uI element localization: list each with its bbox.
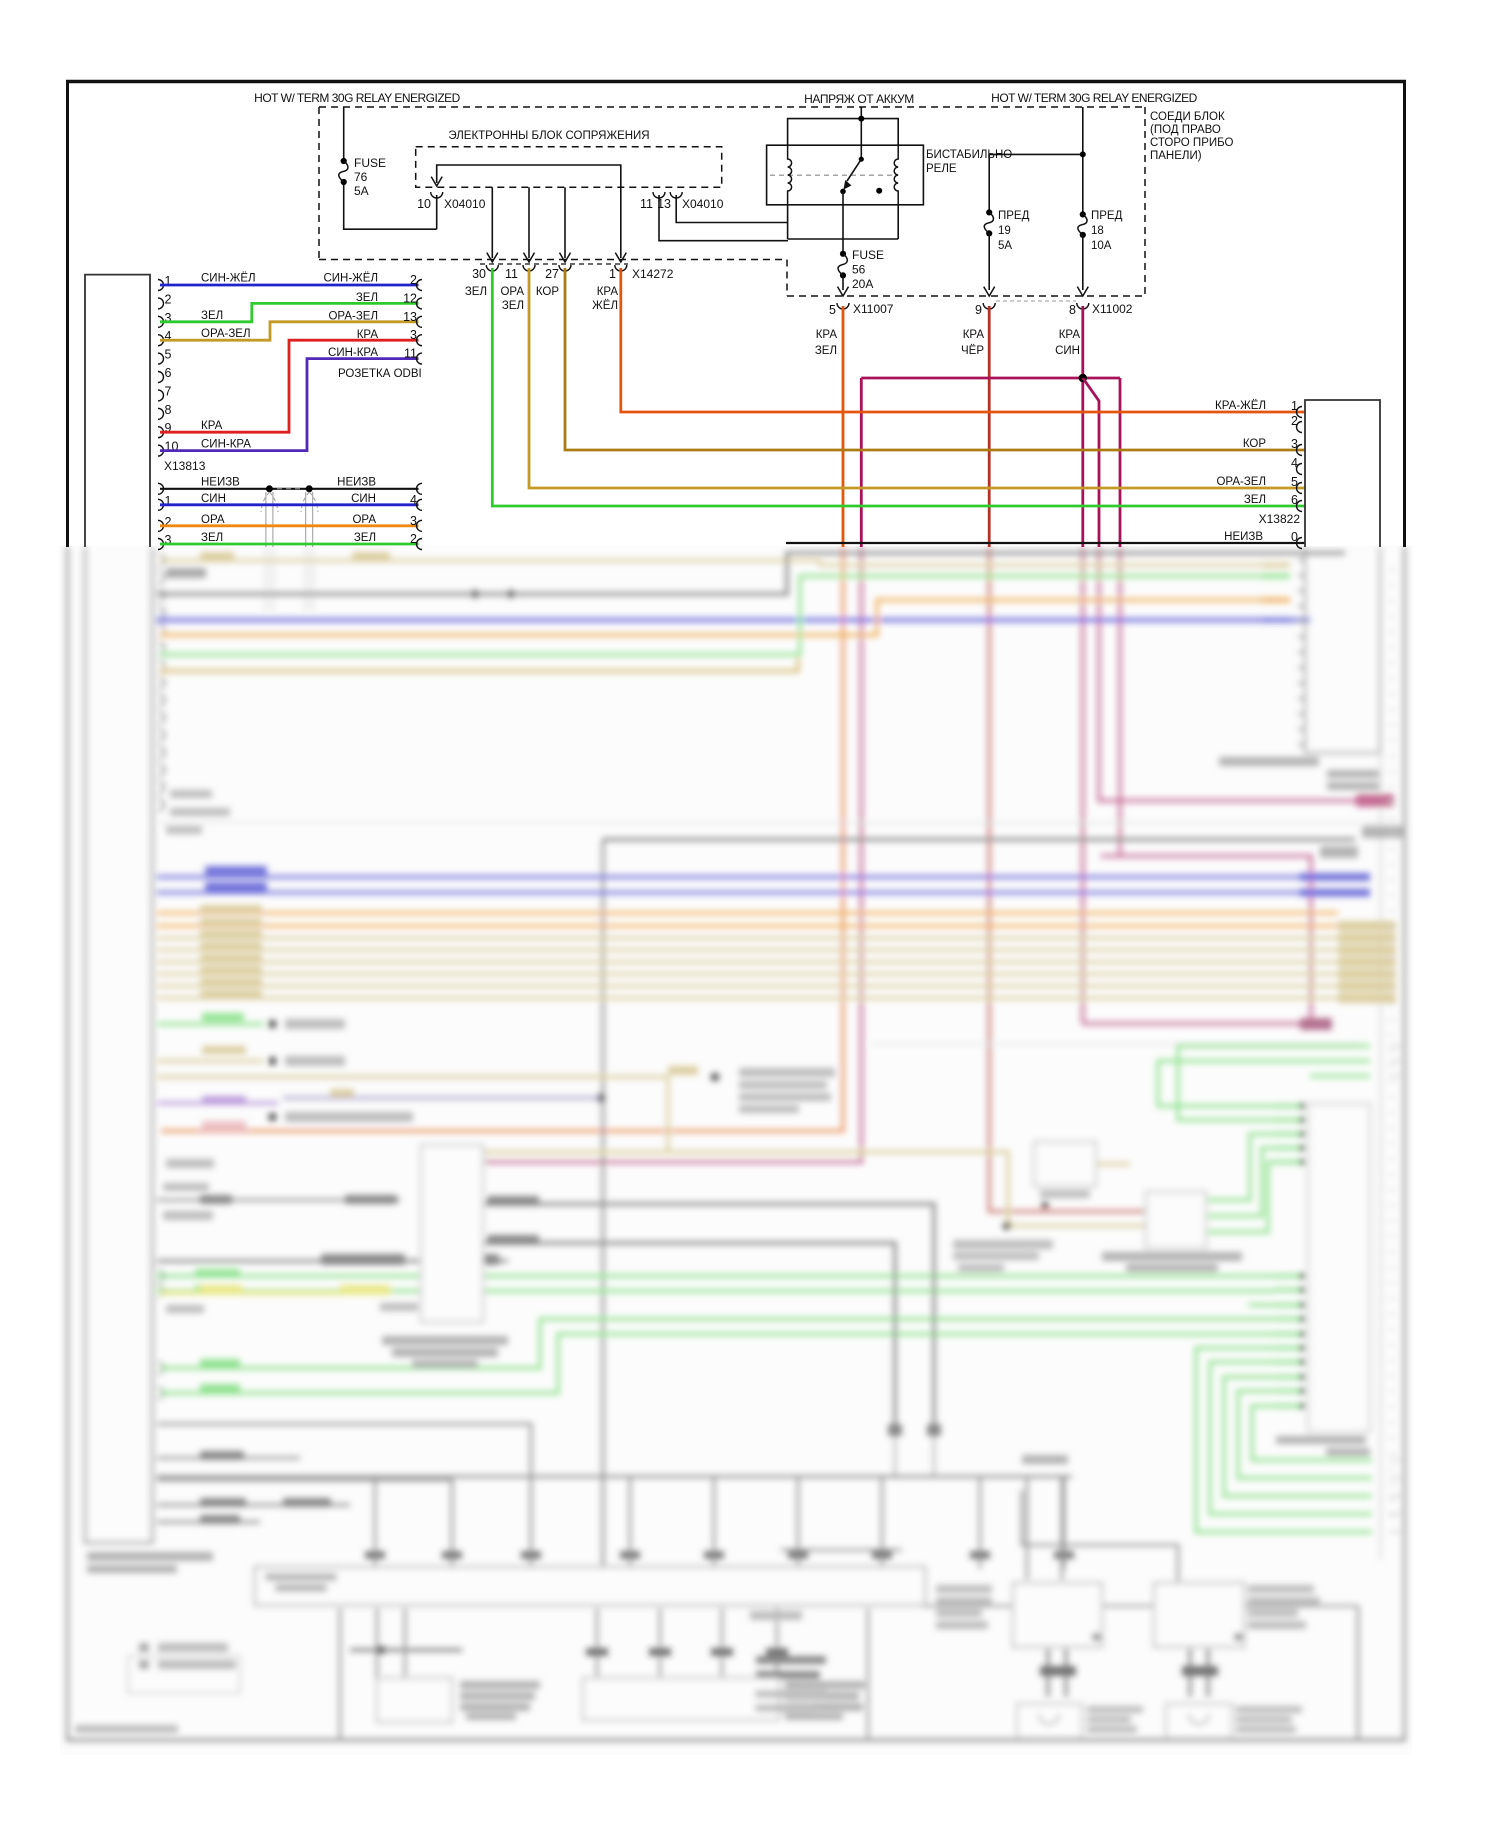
svg-text:СИН-ЖЁЛ: СИН-ЖЁЛ xyxy=(323,273,378,285)
svg-text:НЕИЗВ: НЕИЗВ xyxy=(1224,531,1263,543)
svg-text:0: 0 xyxy=(1291,530,1298,544)
svg-text:ОРА-ЗЕЛ: ОРА-ЗЕЛ xyxy=(201,328,251,340)
svg-text:СИН: СИН xyxy=(1055,345,1080,357)
svg-text:ОРА: ОРА xyxy=(201,514,225,526)
svg-text:4: 4 xyxy=(410,493,417,507)
svg-text:18: 18 xyxy=(1091,225,1104,237)
svg-text:3: 3 xyxy=(410,328,417,342)
svg-text:76: 76 xyxy=(354,170,368,184)
svg-text:ОРА: ОРА xyxy=(500,286,524,298)
svg-text:5: 5 xyxy=(1291,475,1298,489)
svg-text:ЗЕЛ: ЗЕЛ xyxy=(201,310,223,322)
svg-text:СОЕДИ БЛОК: СОЕДИ БЛОК xyxy=(1150,111,1225,123)
svg-text:ОРА: ОРА xyxy=(352,514,376,526)
svg-text:ЗЕЛ: ЗЕЛ xyxy=(201,532,223,544)
svg-text:FUSE: FUSE xyxy=(852,248,884,262)
svg-text:ЗЕЛ: ЗЕЛ xyxy=(1244,494,1266,506)
svg-text:2: 2 xyxy=(165,292,172,306)
svg-text:ПАНЕЛИ): ПАНЕЛИ) xyxy=(1150,150,1202,162)
svg-text:30: 30 xyxy=(472,267,486,281)
svg-text:5A: 5A xyxy=(354,184,369,198)
svg-text:1: 1 xyxy=(1291,399,1298,413)
svg-text:X13813: X13813 xyxy=(164,459,206,473)
svg-text:СИН: СИН xyxy=(351,493,376,505)
svg-text:X11002: X11002 xyxy=(1092,302,1133,316)
svg-text:ЗЕЛ: ЗЕЛ xyxy=(815,345,837,357)
svg-text:13: 13 xyxy=(403,310,417,324)
svg-text:РЕЛЕ: РЕЛЕ xyxy=(926,163,957,175)
svg-text:12: 12 xyxy=(403,291,417,305)
svg-text:КОР: КОР xyxy=(1243,438,1267,450)
svg-text:ЗЕЛ: ЗЕЛ xyxy=(465,286,487,298)
svg-text:27: 27 xyxy=(545,267,559,281)
svg-text:2: 2 xyxy=(1291,414,1298,428)
svg-text:20A: 20A xyxy=(852,277,873,291)
svg-text:HOT W/ TERM 30G RELAY ENERGIZE: HOT W/ TERM 30G RELAY ENERGIZED xyxy=(254,91,460,105)
svg-text:КРА: КРА xyxy=(357,329,379,341)
svg-text:КРА-ЖЁЛ: КРА-ЖЁЛ xyxy=(1215,400,1266,412)
svg-text:ОРА-ЗЕЛ: ОРА-ЗЕЛ xyxy=(1216,476,1266,488)
svg-text:КРА: КРА xyxy=(597,286,619,298)
svg-text:КРА: КРА xyxy=(201,420,223,432)
svg-text:4: 4 xyxy=(1291,456,1298,470)
svg-text:СТОРО ПРИБО: СТОРО ПРИБО xyxy=(1150,137,1234,149)
svg-text:19: 19 xyxy=(998,225,1011,237)
svg-text:56: 56 xyxy=(852,263,866,277)
svg-text:СИН-КРА: СИН-КРА xyxy=(201,439,251,451)
svg-text:ПРЕД: ПРЕД xyxy=(1091,210,1123,222)
svg-text:3: 3 xyxy=(1291,437,1298,451)
svg-text:РОЗЕТКА ODBI: РОЗЕТКА ODBI xyxy=(338,368,422,380)
svg-text:КРА: КРА xyxy=(1059,329,1081,341)
svg-text:НЕИЗВ: НЕИЗВ xyxy=(337,476,376,488)
svg-text:11: 11 xyxy=(404,347,417,361)
svg-text:ЭЛЕКТРОННЫ БЛОК СОПРЯЖЕНИЯ: ЭЛЕКТРОННЫ БЛОК СОПРЯЖЕНИЯ xyxy=(448,130,649,142)
svg-text:X04010: X04010 xyxy=(444,197,486,211)
svg-text:9: 9 xyxy=(975,303,982,317)
svg-text:ЗЕЛ: ЗЕЛ xyxy=(356,292,378,304)
svg-text:(ПОД ПРАВО: (ПОД ПРАВО xyxy=(1150,124,1221,136)
svg-text:5: 5 xyxy=(165,348,172,362)
svg-text:6: 6 xyxy=(165,366,172,380)
svg-text:СИН: СИН xyxy=(201,493,226,505)
svg-text:11: 11 xyxy=(640,197,653,211)
svg-text:X04010: X04010 xyxy=(682,197,724,211)
svg-text:НЕИЗВ: НЕИЗВ xyxy=(201,476,240,488)
svg-text:СИН-КРА: СИН-КРА xyxy=(328,347,378,359)
svg-text:КРА: КРА xyxy=(816,329,838,341)
svg-text:ЗЕЛ: ЗЕЛ xyxy=(502,300,524,312)
svg-text:10A: 10A xyxy=(1091,240,1112,252)
svg-text:2: 2 xyxy=(410,532,417,546)
svg-text:2: 2 xyxy=(410,273,417,287)
svg-text:5: 5 xyxy=(829,303,836,317)
svg-text:НАПРЯЖ ОТ АККУМ: НАПРЯЖ ОТ АККУМ xyxy=(804,92,914,106)
svg-text:СИН-ЖЁЛ: СИН-ЖЁЛ xyxy=(201,273,256,285)
svg-text:ЖЁЛ: ЖЁЛ xyxy=(592,300,618,312)
svg-text:ОРА-ЗЕЛ: ОРА-ЗЕЛ xyxy=(328,310,378,322)
svg-text:ЗЕЛ: ЗЕЛ xyxy=(354,532,376,544)
svg-text:8: 8 xyxy=(1069,303,1076,317)
svg-text:FUSE: FUSE xyxy=(354,156,386,170)
svg-text:X13822: X13822 xyxy=(1259,512,1301,526)
svg-text:11: 11 xyxy=(505,267,518,281)
svg-text:КОР: КОР xyxy=(536,286,560,298)
svg-text:7: 7 xyxy=(165,384,172,398)
svg-text:5A: 5A xyxy=(998,240,1012,252)
svg-text:ПРЕД: ПРЕД xyxy=(998,210,1030,222)
svg-text:6: 6 xyxy=(1291,493,1298,507)
svg-text:10: 10 xyxy=(417,197,431,211)
svg-text:3: 3 xyxy=(410,514,417,528)
svg-text:HOT W/ TERM 30G RELAY ENERGIZE: HOT W/ TERM 30G RELAY ENERGIZED xyxy=(991,91,1197,105)
svg-text:X11007: X11007 xyxy=(853,302,894,316)
svg-text:ЧЁР: ЧЁР xyxy=(961,345,984,357)
svg-text:X14272: X14272 xyxy=(632,267,674,281)
svg-text:8: 8 xyxy=(165,403,172,417)
svg-text:КРА: КРА xyxy=(963,329,985,341)
svg-text:1: 1 xyxy=(609,267,616,281)
